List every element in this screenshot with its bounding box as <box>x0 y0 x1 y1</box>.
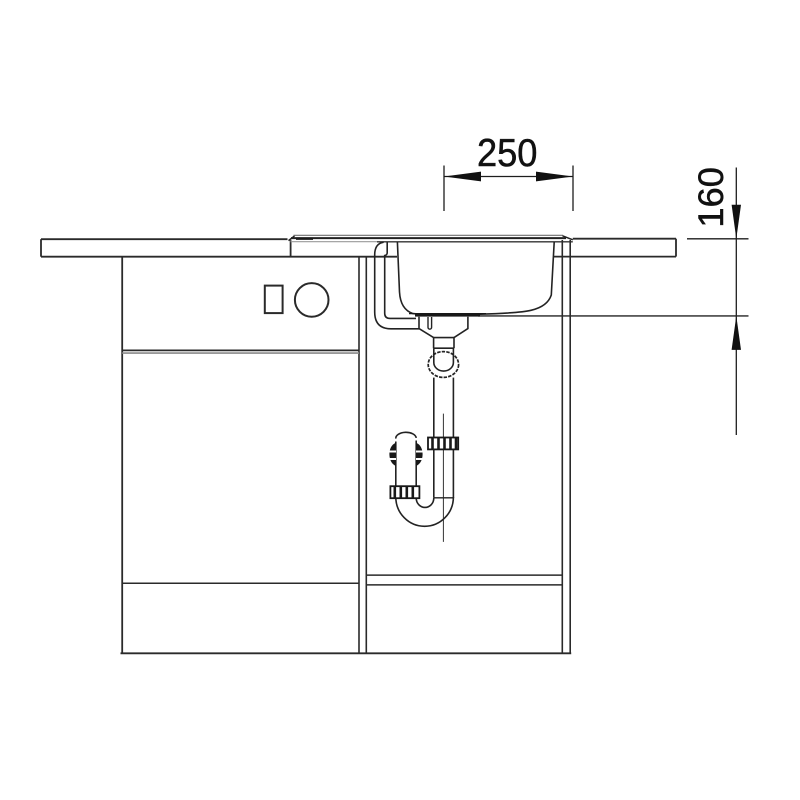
svg-text:160: 160 <box>691 167 731 228</box>
svg-text:250: 250 <box>477 132 538 175</box>
